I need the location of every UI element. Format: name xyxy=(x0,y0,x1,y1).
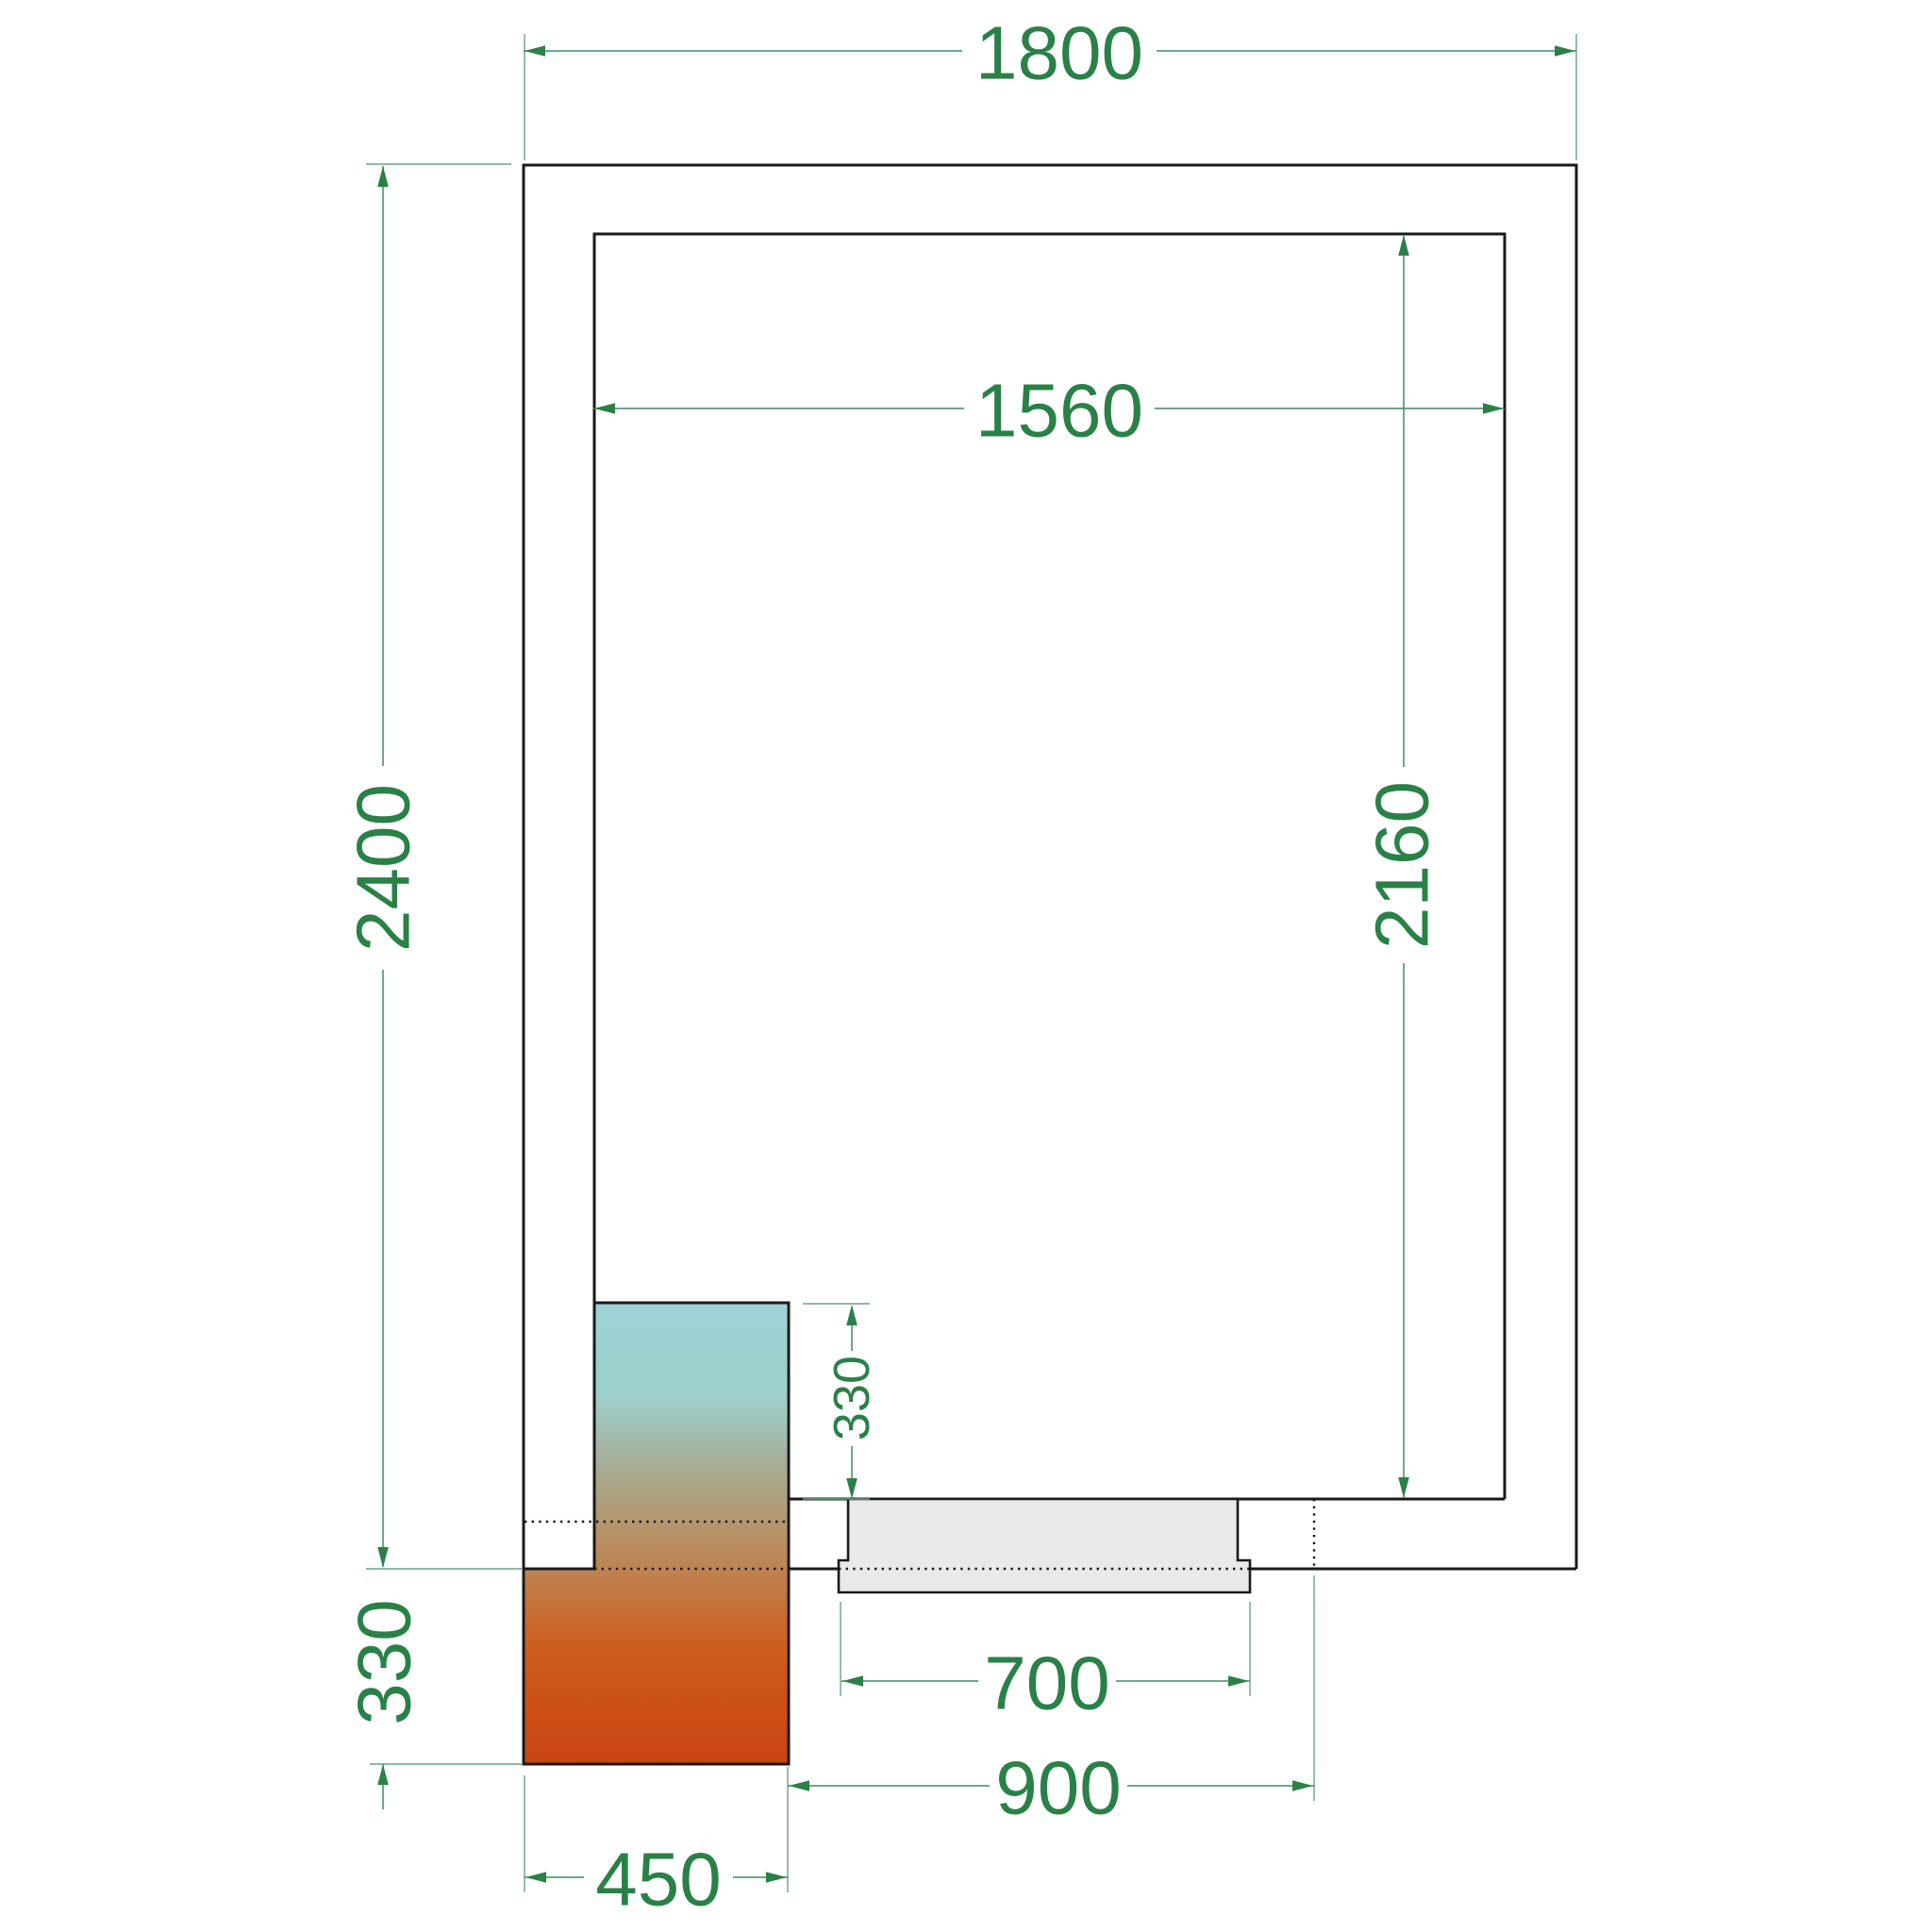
canvas-background xyxy=(0,0,1932,1932)
dim-label-inner-width: 1560 xyxy=(975,369,1143,453)
dim-label-door-opening-width: 900 xyxy=(995,1746,1121,1830)
dim-label-unit-depth-outside: 330 xyxy=(342,1599,426,1724)
floor-plan-canvas: 1800 2400 1560 2160 330 330 700 900 450 xyxy=(0,0,1932,1932)
dim-label-outer-width: 1800 xyxy=(975,11,1143,95)
floor-plan-drawing: 1800 2400 1560 2160 330 330 700 900 450 xyxy=(0,0,1932,1932)
door-leaf xyxy=(839,1499,1250,1592)
dim-label-unit-width: 450 xyxy=(595,1838,721,1922)
dim-label-outer-depth: 2400 xyxy=(341,784,425,952)
dim-label-unit-depth-inside: 330 xyxy=(824,1356,880,1441)
dim-label-inner-depth: 2160 xyxy=(1360,781,1444,949)
dim-label-door-leaf-width: 700 xyxy=(984,1641,1109,1725)
